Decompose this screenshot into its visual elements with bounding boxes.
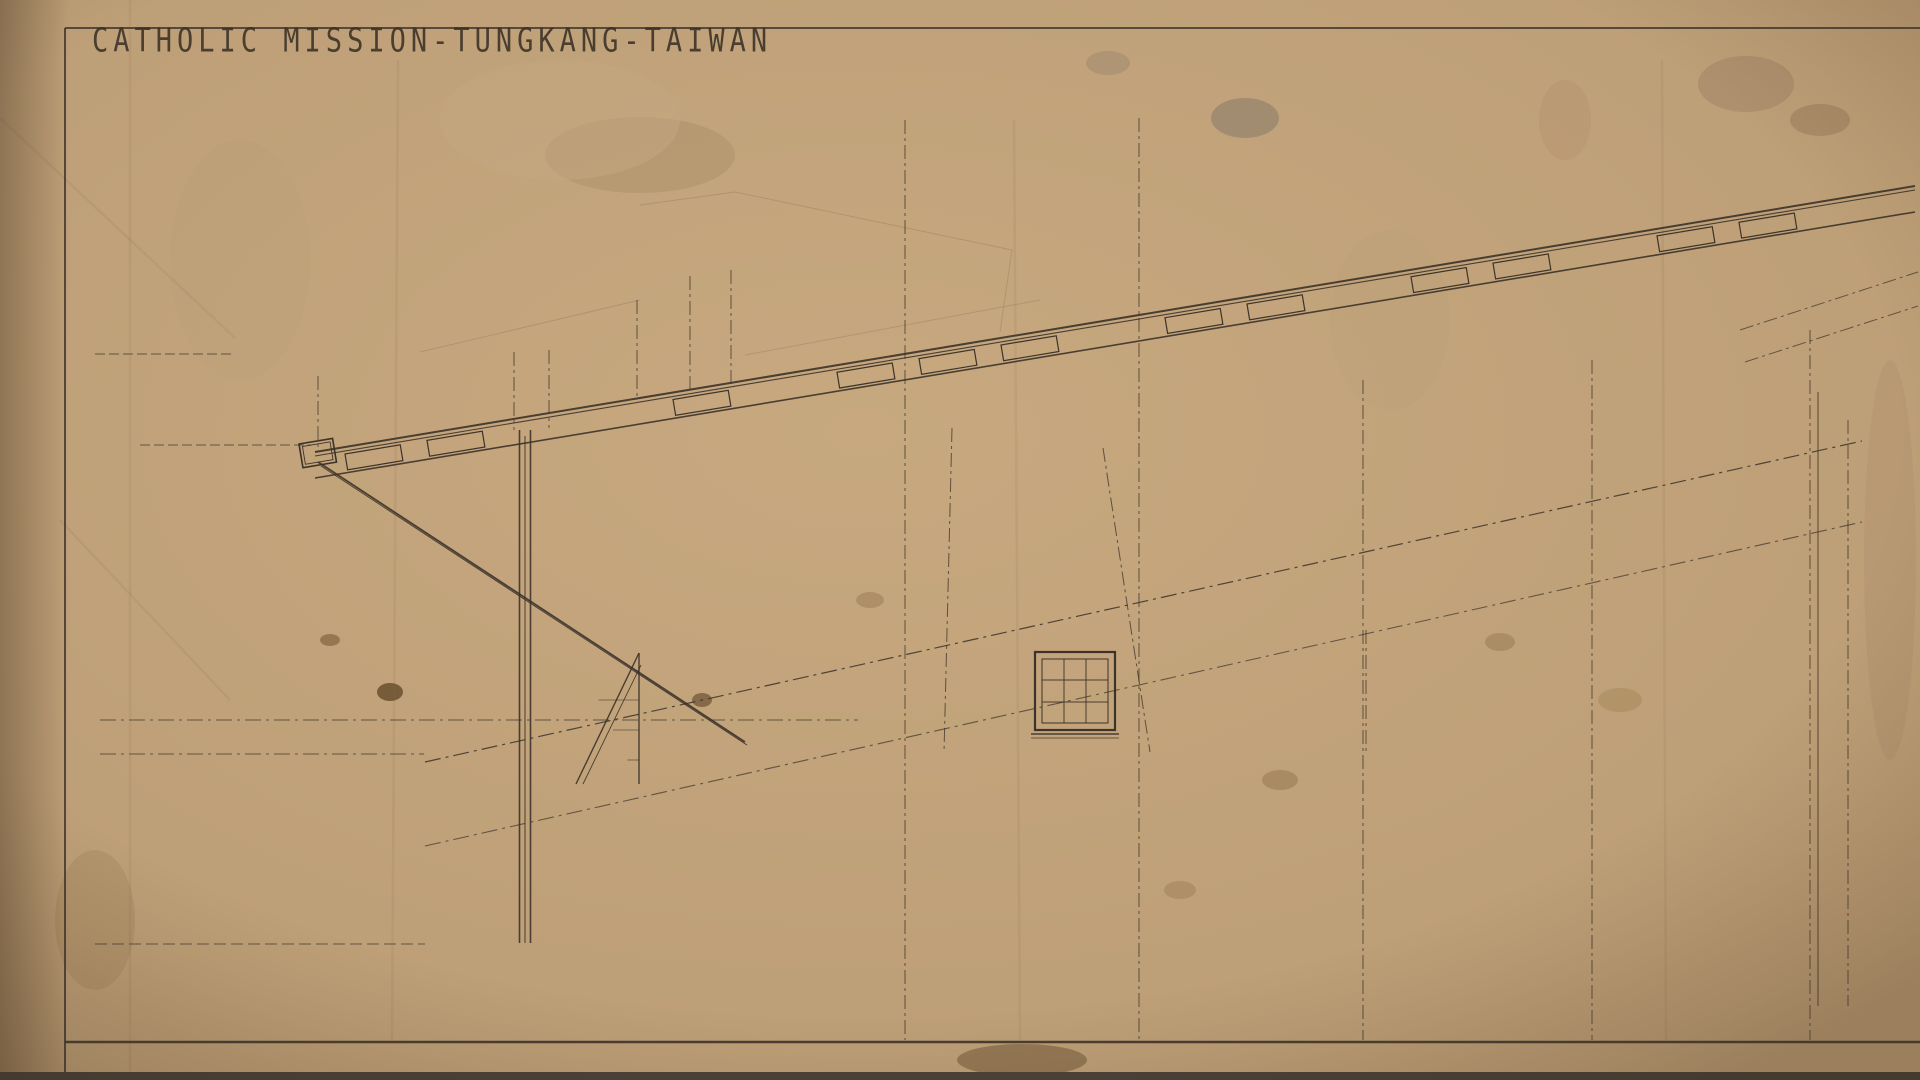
blueprint-svg (0, 0, 1920, 1080)
blueprint-page: CATHOLIC MISSION-TUNGKANG-TAIWAN (0, 0, 1920, 1080)
paper-texture (0, 0, 1920, 1080)
drawing-title: CATHOLIC MISSION-TUNGKANG-TAIWAN (92, 22, 772, 60)
